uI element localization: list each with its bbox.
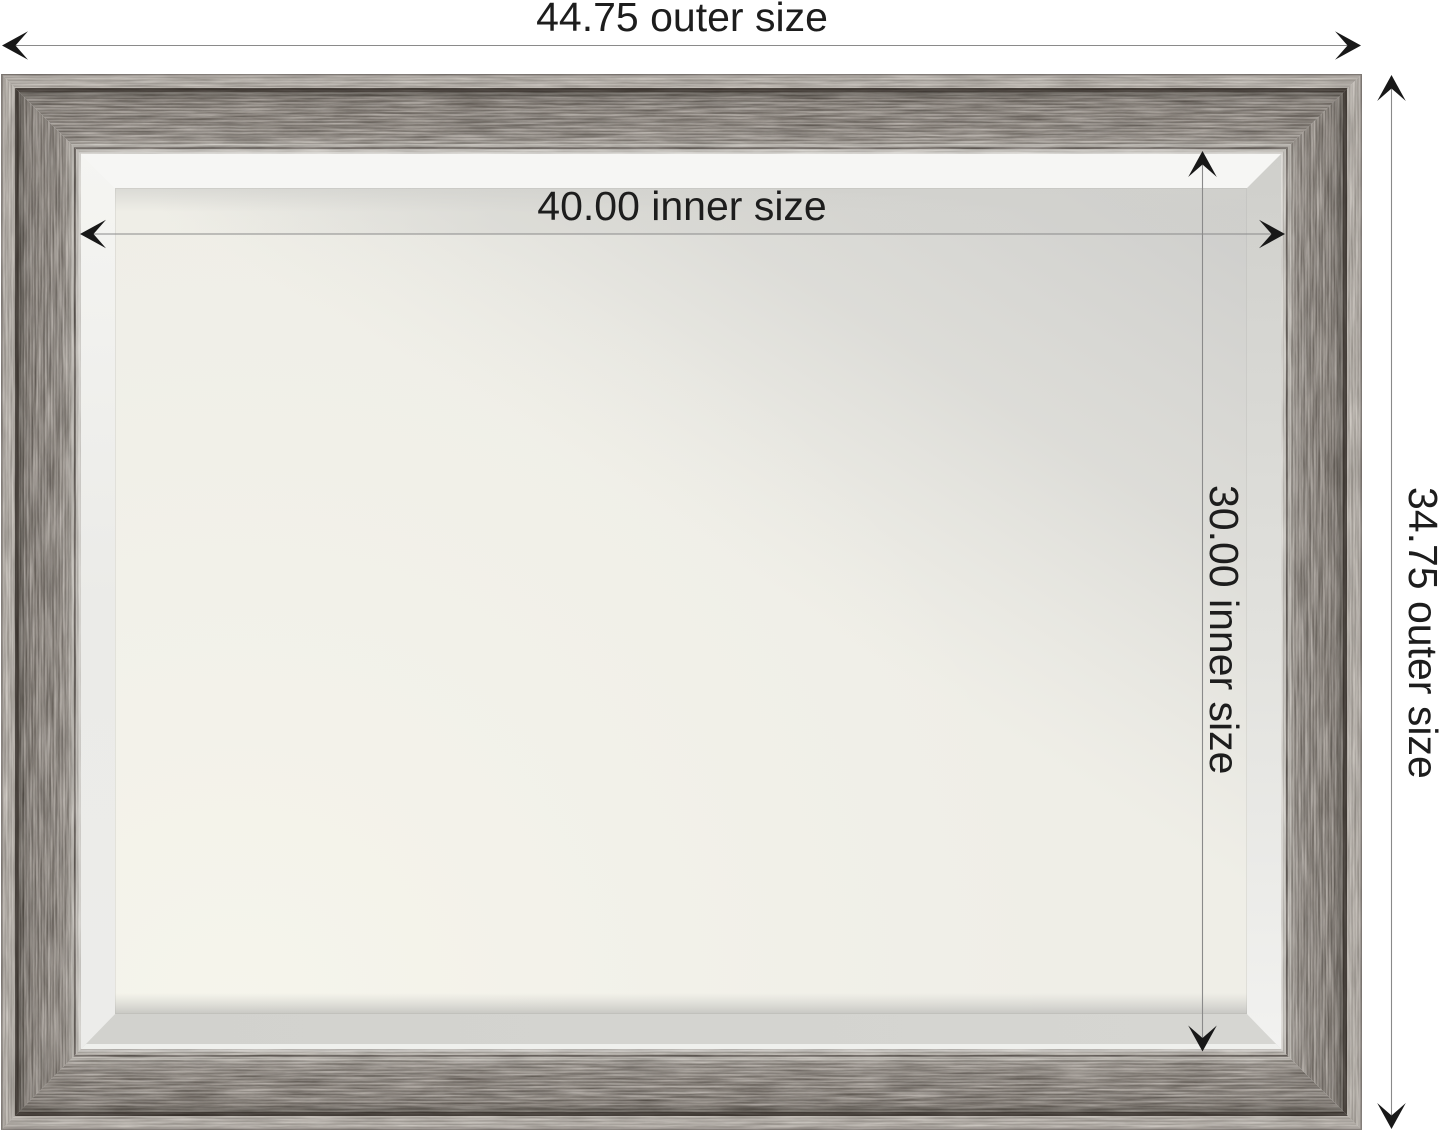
svg-text:30.00 inner size: 30.00 inner size <box>1201 485 1247 774</box>
svg-text:40.00 inner size: 40.00 inner size <box>537 183 826 229</box>
svg-text:34.75 outer size: 34.75 outer size <box>1400 487 1445 779</box>
svg-text:44.75 outer size: 44.75 outer size <box>536 0 828 40</box>
